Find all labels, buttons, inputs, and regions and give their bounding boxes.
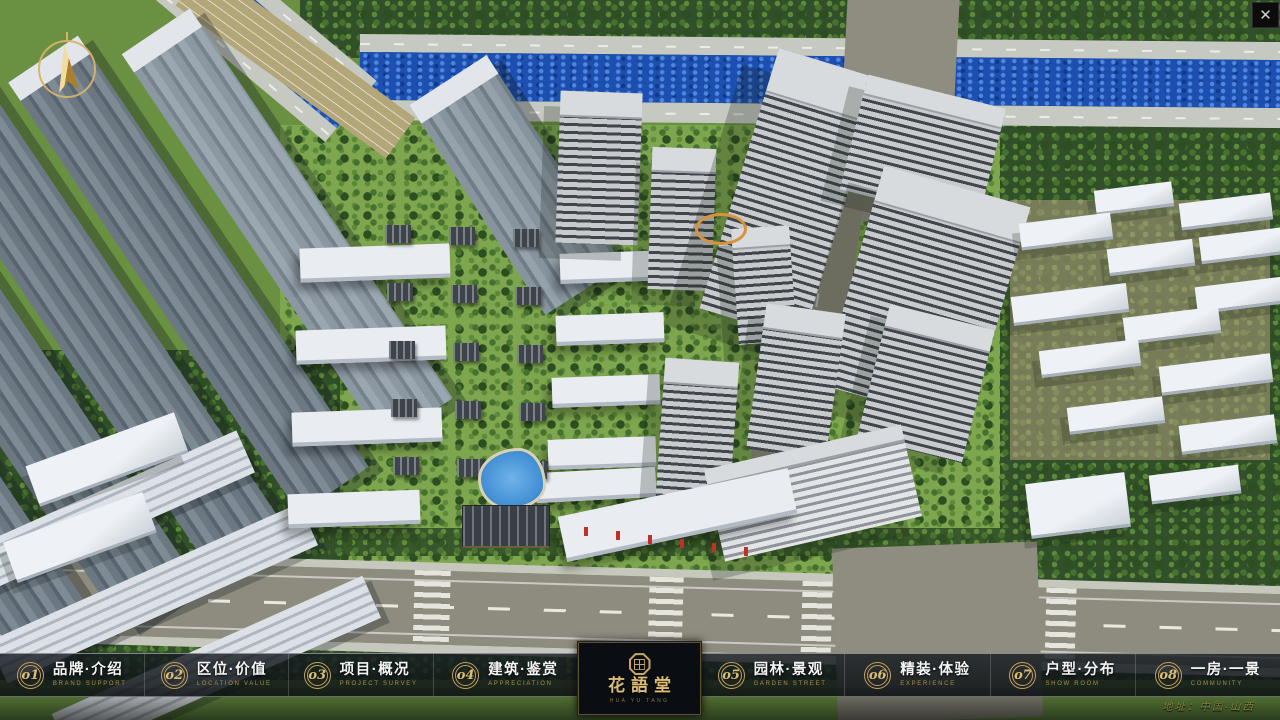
swimming-pool bbox=[478, 448, 546, 510]
nav-label-en: EXPERIENCE bbox=[900, 681, 956, 687]
number-badge: o7 bbox=[1009, 662, 1036, 689]
nav-label-cn: 户型·分布 bbox=[1045, 663, 1115, 679]
nav-label-cn: 一房·一景 bbox=[1191, 663, 1261, 679]
nav-label-cn: 区位·价值 bbox=[197, 663, 267, 679]
nav-item-floorplans[interactable]: o7 户型·分布SHOW ROOM bbox=[991, 654, 1136, 696]
logo-plaque[interactable]: 花語堂 HUA YU TANG bbox=[577, 641, 702, 716]
number-badge: o4 bbox=[452, 662, 479, 689]
nav-label-en: SHOW ROOM bbox=[1045, 681, 1099, 687]
nav-label-cn: 建筑·鉴赏 bbox=[488, 663, 558, 679]
close-button[interactable]: ✕ bbox=[1252, 2, 1279, 28]
nav-item-views[interactable]: o8 一房·一景COMMUNITY bbox=[1136, 654, 1280, 696]
nav-label-cn: 园林·景观 bbox=[754, 663, 824, 679]
close-icon: ✕ bbox=[1259, 8, 1272, 23]
map-scene bbox=[0, 0, 1280, 720]
logo-name: 花語堂 bbox=[608, 677, 677, 696]
nav-label-cn: 品牌·介绍 bbox=[53, 663, 123, 679]
nav-group-left: o1 品牌·介绍BRAND SUPPORT o2 区位·价值LOCATION V… bbox=[0, 654, 577, 696]
tower bbox=[555, 91, 642, 246]
number-badge: o2 bbox=[161, 662, 188, 689]
number-badge: o6 bbox=[864, 662, 891, 689]
clubhouse-roof bbox=[462, 505, 550, 548]
number-badge: o5 bbox=[718, 662, 745, 689]
nav-item-landscape[interactable]: o5 园林·景观GARDEN STREET bbox=[700, 654, 845, 696]
nav-item-architecture[interactable]: o4 建筑·鉴赏APPRECIATION bbox=[434, 654, 578, 696]
nav-group-right: o5 园林·景观GARDEN STREET o6 精装·体验EXPERIENCE… bbox=[700, 654, 1280, 696]
nav-label-cn: 精装·体验 bbox=[900, 663, 970, 679]
nav-item-interior[interactable]: o6 精装·体验EXPERIENCE bbox=[845, 654, 990, 696]
nav-item-location-value[interactable]: o2 区位·价值LOCATION VALUE bbox=[145, 654, 290, 696]
nav-label-en: PROJECT SURVEY bbox=[340, 681, 418, 687]
number-badge: o1 bbox=[17, 662, 44, 689]
logo-caption: HUA YU TANG bbox=[610, 698, 670, 704]
compass-icon bbox=[38, 40, 96, 98]
logo-seal-icon bbox=[629, 653, 651, 675]
nav-label-en: BRAND SUPPORT bbox=[53, 681, 127, 687]
address-text: 地址：中国·山西 bbox=[1162, 699, 1255, 714]
nav-label-en: GARDEN STREET bbox=[754, 681, 827, 687]
playground-ring bbox=[695, 213, 747, 245]
number-badge: o8 bbox=[1155, 662, 1182, 689]
number-badge: o3 bbox=[304, 662, 331, 689]
nav-label-cn: 项目·概况 bbox=[340, 663, 410, 679]
nav-label-en: LOCATION VALUE bbox=[197, 681, 272, 687]
nav-label-en: COMMUNITY bbox=[1191, 681, 1243, 687]
nav-label-en: APPRECIATION bbox=[488, 681, 553, 687]
presentation-window: ✕ o1 品牌·介绍BRAND SUPPORT o2 区位·价值LOCATION… bbox=[0, 0, 1280, 720]
nav-item-project-overview[interactable]: o3 项目·概况PROJECT SURVEY bbox=[289, 654, 434, 696]
nav-item-brand-intro[interactable]: o1 品牌·介绍BRAND SUPPORT bbox=[0, 654, 145, 696]
